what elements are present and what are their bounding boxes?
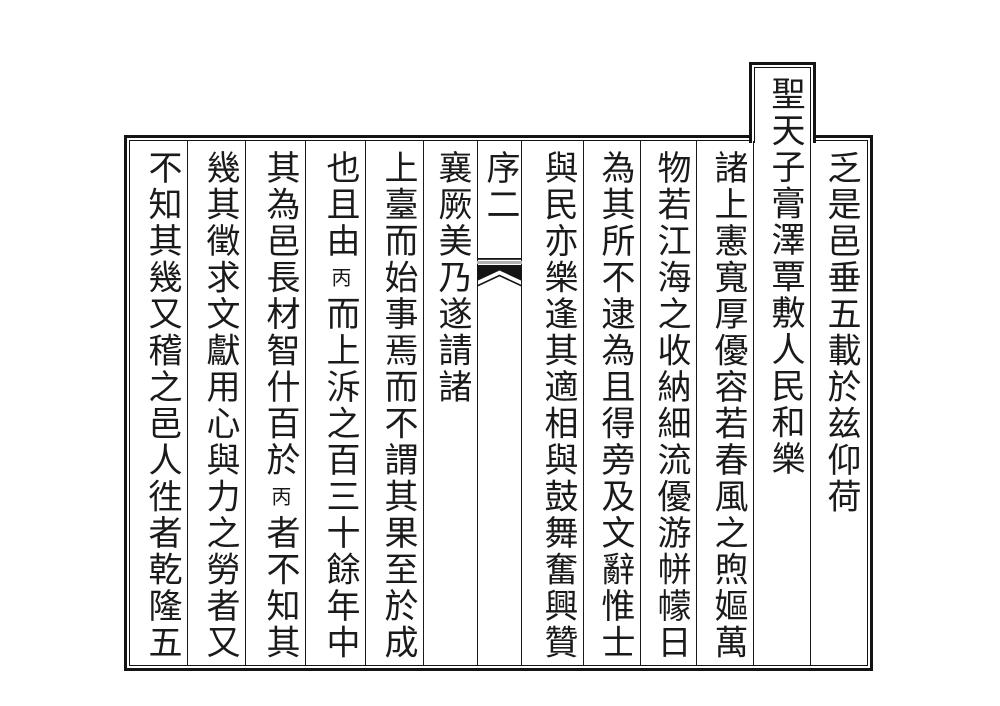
column-separator	[187, 141, 188, 665]
column-separator	[810, 141, 811, 665]
text-column-8: 襄厥美乃遂請諸	[425, 142, 476, 664]
column-separator	[365, 141, 366, 665]
text-column-12: 幾其徵求文獻用心與力之勞者又	[189, 142, 244, 664]
text-column-6: 與民亦樂逢其適相與鼓舞奮興贊	[523, 142, 582, 664]
text-column-13: 不知其幾又稽之邑人徃者乾隆五	[131, 142, 186, 664]
text-column-5: 為其所不逮為且得旁及文辭惟士	[585, 142, 639, 664]
text-column-1: 乏是邑垂五載於兹仰荷	[812, 142, 865, 664]
small-annotation-char: 丙	[328, 267, 350, 290]
tab-title-column: 聖天子膏澤覃敷人民和樂	[755, 76, 809, 664]
column-separator	[753, 141, 754, 665]
column-separator	[640, 141, 641, 665]
column-separator	[696, 141, 697, 665]
column-separator	[305, 141, 306, 665]
column-separator	[245, 141, 246, 665]
column-separator	[583, 141, 584, 665]
column-separator	[423, 141, 424, 665]
text-column-9: 上臺而始事焉而不謂其果至於成	[367, 142, 422, 664]
center-title-column: 序二	[478, 142, 521, 664]
column-separator	[521, 141, 522, 665]
text-column-10: 也且由丙而上泝之百三十餘年中	[307, 142, 364, 664]
small-annotation-char: 丙	[268, 486, 290, 509]
text-column-11: 其為邑長材智什百於丙者不知其	[247, 142, 304, 664]
text-column-4: 物若江海之收納細流優游帡幪日	[642, 142, 695, 664]
fishtail-icon	[477, 258, 522, 290]
text-column-3: 諸上憲寬厚優容若春風之煦嫗萬	[698, 142, 752, 664]
